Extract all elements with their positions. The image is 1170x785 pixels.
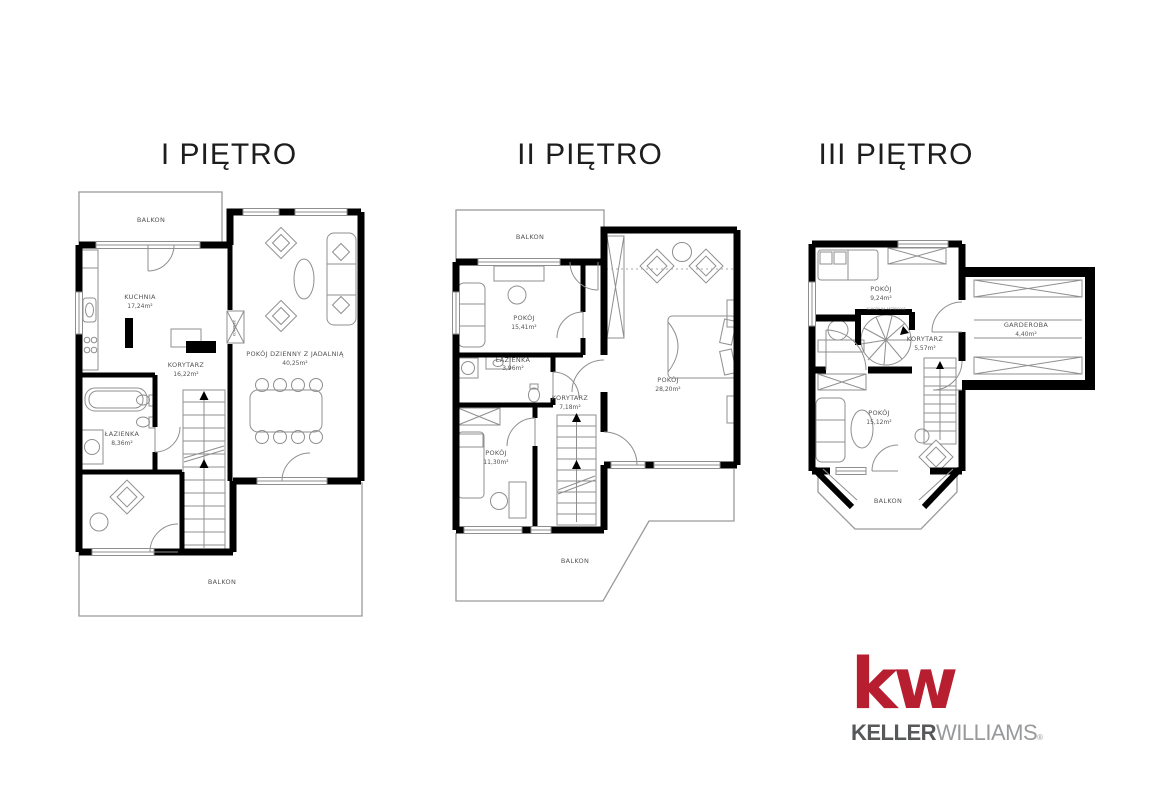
floor3-straight-staircase bbox=[924, 358, 956, 444]
floor2-balcony-bottom bbox=[456, 469, 734, 601]
floor2-balkon-top-label: BALKON bbox=[516, 233, 544, 241]
floor2-korytarz-area: 7,18m² bbox=[559, 404, 581, 411]
floorplan-sheet: I PIĘTRO II PIĘTRO III PIĘTRO bbox=[0, 0, 1170, 785]
logo-registered-mark: ® bbox=[1037, 733, 1042, 742]
keller-williams-logo: kw KELLERWILLIAMS® bbox=[851, 650, 1061, 746]
floor3-garderoba-label: GARDEROBA bbox=[1004, 321, 1049, 329]
floor1-pokoj-dzienny-area: 40,25m² bbox=[282, 360, 308, 367]
logo-keller-text: KELLER bbox=[851, 720, 936, 745]
floor1-korytarz-label: KORYTARZ bbox=[168, 361, 205, 369]
floor1-kitchen-wall-stub2 bbox=[186, 341, 216, 353]
floor1-kitchen-wall-stub bbox=[125, 318, 133, 348]
floor1-fireplace: KOMINEK bbox=[227, 311, 244, 343]
floor3-garderoba-area: 4,40m² bbox=[1015, 331, 1037, 338]
fireplace-label: KOMINEK bbox=[233, 319, 237, 336]
floor3-korytarz-label: KORYTARZ bbox=[907, 335, 944, 343]
floor3-plan: POKÓJ 9,24m² SCHODY NA ANTRESOLĘ KORYTAR… bbox=[809, 241, 1091, 530]
floor2-pokoj3-label: POKÓJ bbox=[657, 375, 678, 384]
floor3-pokoj1-area: 9,24m² bbox=[870, 295, 892, 302]
floor2-lazienka-area: 3,96m² bbox=[502, 365, 524, 372]
kw-logo-wordmark: KELLERWILLIAMS® bbox=[851, 720, 1061, 746]
floor1-kitchen-fixtures bbox=[81, 250, 201, 370]
floor1-balkon-bottom-label: BALKON bbox=[208, 578, 236, 586]
floor3-pokoj2-area: 15,12m² bbox=[866, 419, 892, 426]
floor3-korytarz-area: 5,57m² bbox=[914, 345, 936, 352]
floor2-room1-furniture bbox=[458, 266, 544, 347]
floor1-korytarz-area: 16,22m² bbox=[173, 371, 199, 378]
logo-williams-text: WILLIAMS bbox=[936, 720, 1037, 745]
floor2-korytarz-label: KORYTARZ bbox=[552, 394, 589, 402]
floor3-spiral-staircase bbox=[861, 315, 911, 365]
floor2-pokoj2-area: 11,30m² bbox=[483, 459, 509, 466]
floor2-pokoj1-label: POKÓJ bbox=[513, 313, 534, 322]
kw-logo-mark: kw bbox=[851, 650, 1061, 718]
floor2-pokoj3-area: 28,20m² bbox=[655, 386, 681, 393]
floor2-staircase bbox=[557, 413, 596, 525]
floor1-lazienka-area: 8,36m² bbox=[111, 440, 133, 447]
floor1-dining-table bbox=[250, 379, 323, 444]
floor2-pokoj1-area: 15,41m² bbox=[511, 324, 537, 331]
floor3-schody-note: SCHODY NA ANTRESOLĘ bbox=[866, 307, 905, 311]
floor1-kuchnia-area: 17,24m² bbox=[127, 303, 153, 310]
floor3-pokoj1-label: POKÓJ bbox=[870, 284, 891, 293]
floor2-lazienka-label: ŁAZIENKA bbox=[495, 356, 531, 364]
floor1-plan: KOMINEK BALKON KUCHNIA 17,24m² bbox=[76, 192, 363, 616]
floor1-bathroom-fixtures bbox=[81, 388, 154, 464]
floor1-sofa-set bbox=[265, 227, 356, 331]
floor1-pokoj-dzienny-label: POKÓJ DZIENNY Z JADALNIĄ bbox=[246, 349, 344, 358]
floor1-staircase bbox=[183, 390, 225, 550]
floor3-balkon-label: BALKON bbox=[874, 497, 902, 505]
floor1-kuchnia-label: KUCHNIA bbox=[124, 293, 156, 301]
floor2-pokoj2-label: POKÓJ bbox=[485, 448, 506, 457]
floor2-bedroom-furniture bbox=[606, 236, 736, 423]
floor1-balkon-top-label: BALKON bbox=[137, 216, 165, 224]
floor3-pokoj2-label: POKÓJ bbox=[868, 408, 889, 417]
floor1-lounge-chair bbox=[90, 480, 144, 531]
floor2-balkon-bottom-label: BALKON bbox=[561, 557, 589, 565]
floor1-lazienka-label: ŁAZIENKA bbox=[104, 430, 140, 438]
floor2-plan: BALKON POKÓJ 15,41m² ŁAZIENKA 3,96m² KOR… bbox=[453, 210, 738, 601]
